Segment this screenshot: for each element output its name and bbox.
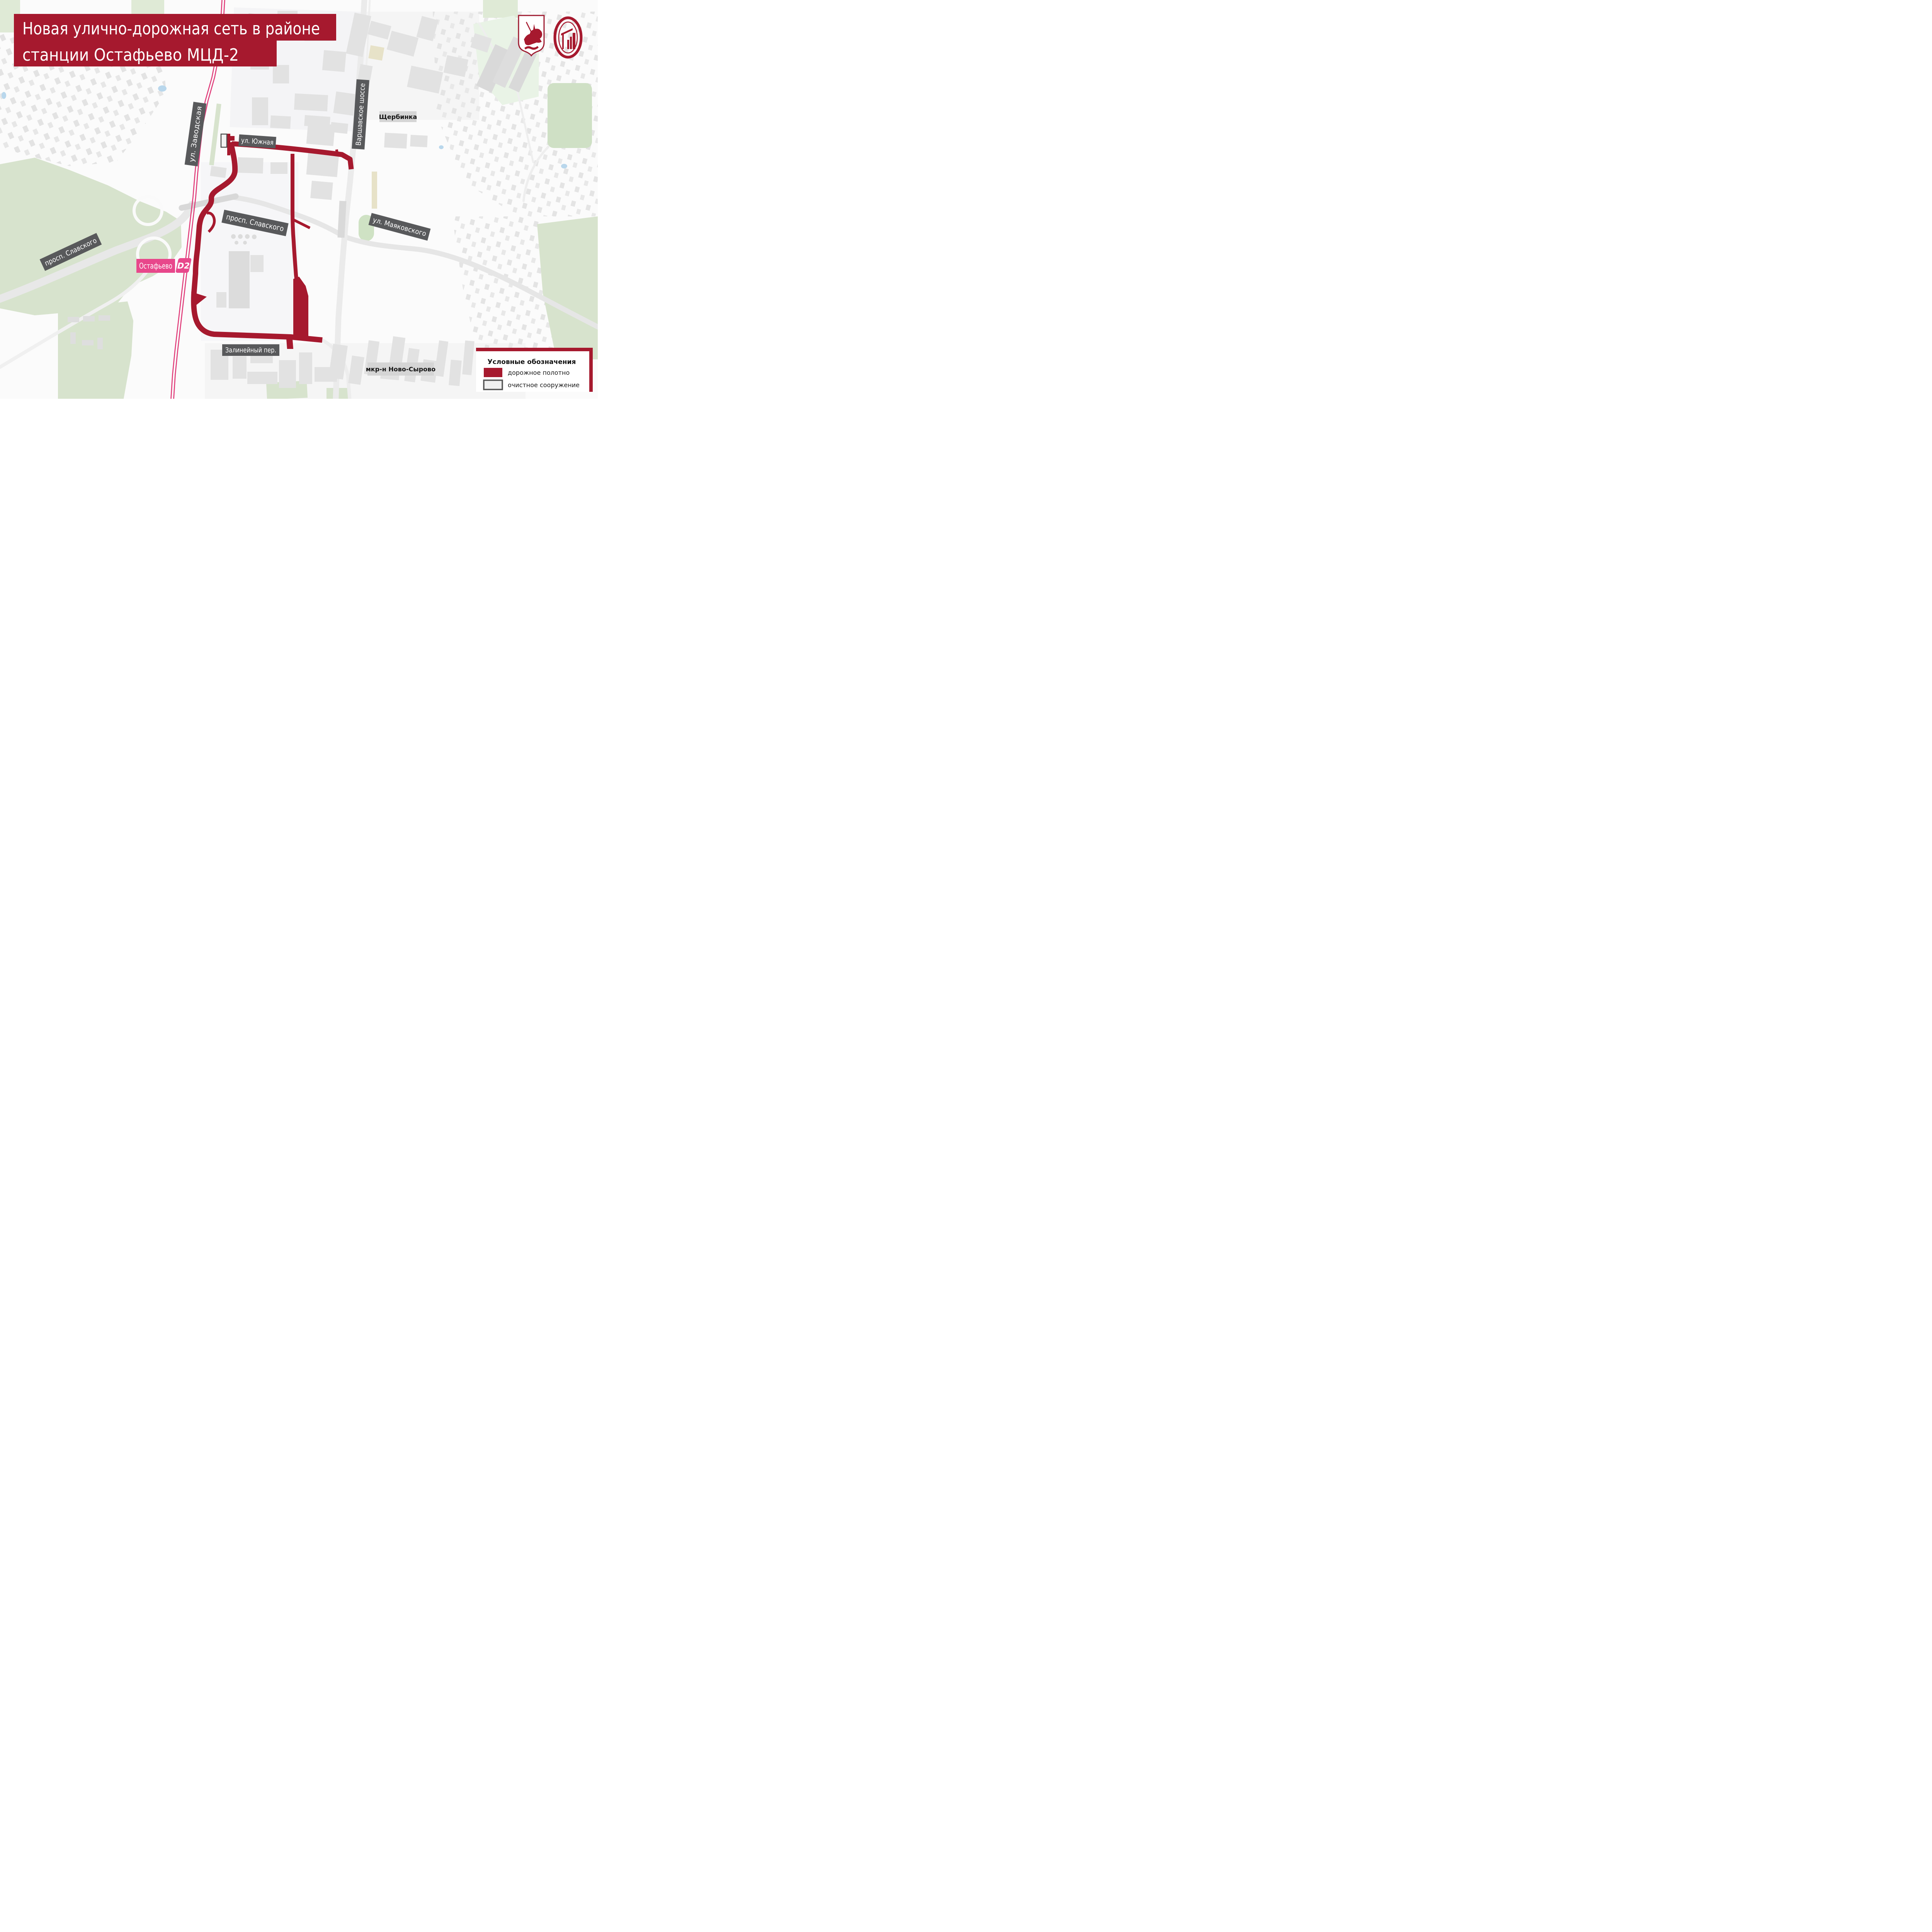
beige-strip (372, 172, 377, 209)
legend-swatch-road (484, 368, 502, 377)
moscow-coat-of-arms-logo (519, 15, 544, 56)
road-spur-north (337, 150, 338, 156)
area-label-text: Щербинка (379, 113, 417, 121)
station-label-ostafyevo: Остафьево (136, 259, 175, 273)
page-title-line2: станции Остафьево МЦД-2 (22, 45, 239, 65)
legend-label-road: дорожное полотно (508, 369, 570, 376)
infographic-poster: ул. Заводская ул. Южная Варшавское шоссе… (0, 0, 598, 399)
street-label-zalineyny: Залинейный пер. (222, 344, 279, 356)
area-label-novo-syrovo: мкр-н Ново-Сырово (366, 362, 436, 376)
street-label-text: Залинейный пер. (225, 346, 276, 354)
legend-swatch-facility (484, 380, 502, 389)
page-title-line1: Новая улично-дорожная сеть в районе (22, 19, 320, 39)
legend: Условные обозначения дорожное полотно оч… (476, 348, 593, 392)
legend-label-facility: очистное сооружение (508, 381, 580, 389)
road-stub-south (286, 339, 293, 349)
station-name: Остафьево (139, 261, 172, 270)
beige-building (368, 45, 384, 61)
legend-border-right (589, 348, 593, 392)
legend-item-road: дорожное полотно (484, 368, 570, 377)
legend-item-facility: очистное сооружение (484, 380, 580, 389)
area-label-text: мкр-н Ново-Сырово (366, 366, 436, 373)
station-badge-text: D2 (176, 261, 190, 271)
area-label-shcherbinka: Щербинка (379, 111, 417, 122)
treatment-facility-marker (221, 134, 227, 147)
legend-border-top (476, 348, 593, 351)
legend-title: Условные обозначения (488, 358, 576, 366)
